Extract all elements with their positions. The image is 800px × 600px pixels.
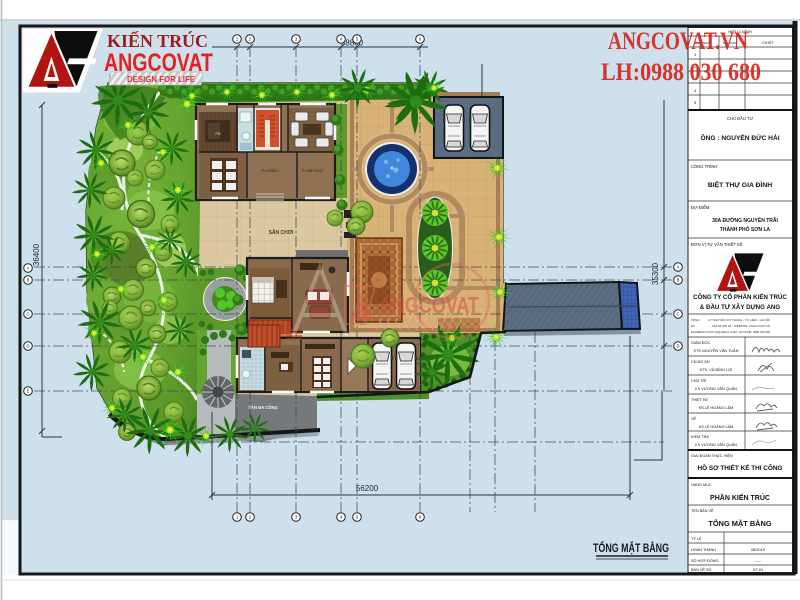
svg-text:CÔNG TRÌNH: CÔNG TRÌNH	[691, 164, 717, 169]
svg-text:35300: 35300	[651, 262, 660, 285]
svg-text:KIẾN TRÚC: KIẾN TRÚC	[107, 30, 208, 51]
svg-text:D: D	[676, 344, 679, 349]
svg-text:KTS NGUYỄN VĂN TUẤN: KTS NGUYỄN VĂN TUẤN	[694, 348, 739, 353]
svg-text:CÔNG TY CỔ PHẦN KIẾN TRÚC: CÔNG TY CỔ PHẦN KIẾN TRÚC	[693, 293, 787, 301]
svg-text:DUYỆT: DUYỆT	[762, 40, 774, 45]
svg-text:SÂN CHƠI: SÂN CHƠI	[269, 229, 294, 236]
svg-text:08/2019: 08/2019	[751, 548, 765, 552]
svg-text:ĐỊA ĐIỂM: ĐỊA ĐIỂM	[691, 205, 710, 210]
svg-text:BẢN VẼ SỐ: BẢN VẼ SỐ	[691, 567, 712, 572]
svg-text:B: B	[677, 278, 680, 283]
svg-text:KS VƯƠNG VĂN QUÂN: KS VƯƠNG VĂN QUÂN	[695, 442, 737, 447]
svg-text:SÂN ĐA CÔNG: SÂN ĐA CÔNG	[248, 405, 278, 410]
svg-text:KS VƯƠNG VĂN QUÂN: KS VƯƠNG VĂN QUÂN	[695, 386, 737, 391]
svg-text:KS.LÊ HOÀNG LÂM: KS.LÊ HOÀNG LÂM	[699, 405, 734, 410]
svg-text:KS.LÊ HOÀNG LÂM: KS.LÊ HOÀNG LÂM	[699, 424, 734, 429]
svg-text:A: A	[27, 266, 30, 271]
svg-text:ÔNG : NGUYỄN ĐỨC HẢI: ÔNG : NGUYỄN ĐỨC HẢI	[700, 133, 779, 142]
svg-text:ANGCOVAT.VN@GMAIL.COM - HOTLIN: ANGCOVAT.VN@GMAIL.COM - HOTLINE: 0988.03…	[698, 330, 770, 334]
svg-text:E: E	[27, 389, 30, 394]
svg-text:BIỆT THỰ GIA ĐÌNH: BIỆT THỰ GIA ĐÌNH	[708, 180, 772, 189]
svg-text:ANGCOVAT: ANGCOVAT	[379, 292, 479, 318]
svg-text:HOÀN THÀNH: HOÀN THÀNH	[691, 548, 716, 552]
svg-text:KT-01: KT-01	[753, 568, 763, 572]
svg-text:TÊN BẢN VẼ: TÊN BẢN VẼ	[691, 508, 714, 513]
svg-text:ĐƠN VỊ TƯ VẤN THIẾT KẾ: ĐƠN VỊ TƯ VẤN THIẾT KẾ	[691, 242, 743, 247]
svg-text:& ĐẦU TƯ XÂY DỰNG ANG: & ĐẦU TƯ XÂY DỰNG ANG	[700, 304, 781, 311]
svg-text:VPGD: VPGD	[691, 318, 700, 322]
svg-text:VẼ: VẼ	[691, 416, 697, 421]
svg-text:THÀNH PHỐ SƠN LA: THÀNH PHỐ SƠN LA	[720, 226, 771, 233]
svg-text:A: A	[677, 265, 680, 270]
svg-text:HẠNG MỤC: HẠNG MỤC	[691, 483, 712, 487]
svg-text:TỔNG MẶT BẰNG: TỔNG MẶT BẰNG	[708, 519, 771, 528]
svg-text:PH. KHÁCH: PH. KHÁCH	[261, 169, 279, 173]
svg-text:C7 NGUYỄN CƠ THẠCH - TỪ LIÊM -: C7 NGUYỄN CƠ THẠCH - TỪ LIÊM - HÀ NỘI	[708, 317, 770, 322]
svg-text:D: D	[26, 344, 29, 349]
svg-text:SỐ HỢP ĐỒNG: SỐ HỢP ĐỒNG	[691, 558, 718, 563]
svg-text:CHỦ ĐẦU TƯ: CHỦ ĐẦU TƯ	[727, 116, 754, 121]
svg-text:KTS. VŨ ĐÌNH LỢI: KTS. VŨ ĐÌNH LỢI	[700, 367, 733, 372]
svg-text:CN ĐỒ ÁN: CN ĐỒ ÁN	[691, 359, 710, 364]
svg-text:CHỦ TRÌ: CHỦ TRÌ	[691, 378, 706, 383]
svg-text:C: C	[26, 312, 29, 317]
svg-text:B: B	[27, 278, 30, 283]
svg-text:..—..: ..—..	[754, 559, 762, 563]
svg-text:GIAI ĐOẠN THỰC HIỆN: GIAI ĐOẠN THỰC HIỆN	[691, 453, 733, 458]
svg-text:THIẾT KẾ: THIẾT KẾ	[691, 397, 708, 402]
svg-text:GIÁM ĐỐC: GIÁM ĐỐC	[691, 340, 710, 345]
svg-text:DESIGN FOR LIFE: DESIGN FOR LIFE	[127, 74, 195, 84]
svg-text:30A ĐƯỜNG NGUYỄN TRÃI: 30A ĐƯỜNG NGUYỄN TRÃI	[712, 216, 778, 224]
svg-text:P.N: P.N	[216, 132, 222, 136]
svg-text:KIỂM TRA: KIỂM TRA	[691, 434, 709, 439]
svg-text:P. SINH HOẠT: P. SINH HOẠT	[303, 169, 324, 173]
svg-text:36400: 36400	[32, 243, 41, 266]
svg-text:TỔNG MẶT BẰNG: TỔNG MẶT BẰNG	[593, 542, 669, 555]
svg-text:LH:0988 030 680: LH:0988 030 680	[601, 59, 761, 86]
svg-text:ANGCOVAT.VN: ANGCOVAT.VN	[608, 28, 748, 55]
svg-text:56200: 56200	[356, 484, 379, 493]
svg-text:024.66.525.04 - WEBSITE: ANGCO: 024.66.525.04 - WEBSITE: ANGCOVAT.VN	[712, 324, 770, 328]
svg-text:ĐT: ĐT	[691, 324, 695, 328]
svg-text:C: C	[676, 312, 679, 317]
svg-text:TỶ LỆ: TỶ LỆ	[691, 536, 702, 541]
